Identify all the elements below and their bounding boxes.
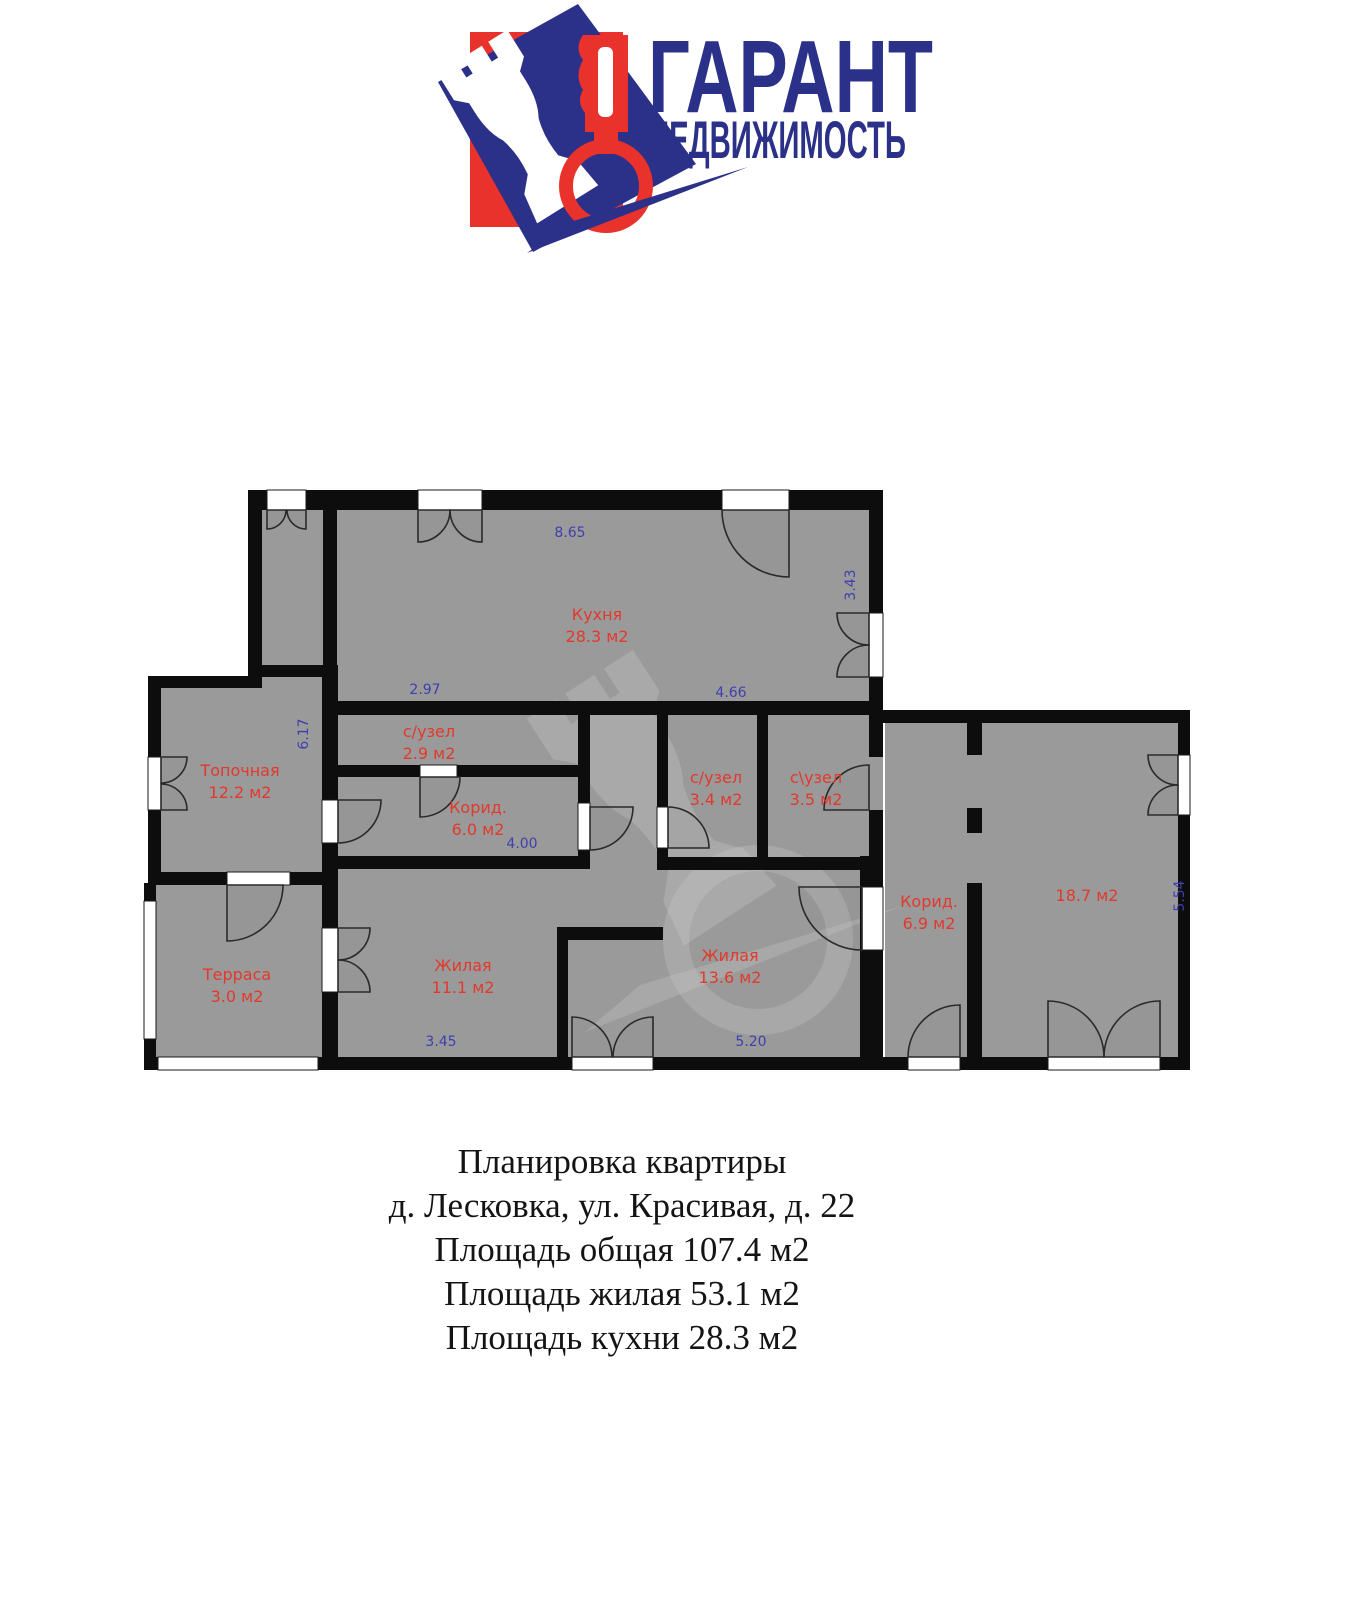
room-area-corridor2: 6.9 м2 — [903, 914, 956, 933]
window — [144, 901, 156, 1039]
window — [158, 1057, 318, 1070]
window — [267, 490, 306, 510]
room-area-boiler: 12.2 м2 — [209, 783, 272, 802]
room-label-corridor2: Корид. — [900, 892, 958, 911]
room-label-boiler: Топочная — [199, 761, 279, 780]
room-area-wc2: 3.4 м2 — [690, 790, 743, 809]
door-gap — [322, 928, 338, 992]
footer-line-living: Площадь жилая 53.1 м2 — [292, 1272, 952, 1316]
room-label-wc2: с/узел — [690, 768, 742, 787]
room-area-terrace: 3.0 м2 — [211, 987, 264, 1006]
window — [722, 490, 789, 510]
dim-2-97: 2.97 — [409, 682, 440, 698]
floor-plan: Кухня 28.3 м2 Топочная 12.2 м2 с/узел 2.… — [140, 480, 1196, 1080]
room-area-wc1: 2.9 м2 — [403, 744, 456, 763]
door-gap — [227, 872, 290, 885]
door-gap — [322, 800, 338, 843]
dim-5-20: 5.20 — [735, 1034, 766, 1050]
room-area-wc3: 3.5 м2 — [790, 790, 843, 809]
footer-line-title: Планировка квартиры — [292, 1140, 952, 1184]
room-area-bigroom: 18.7 м2 — [1056, 886, 1119, 905]
dim-3-43: 3.43 — [843, 569, 859, 600]
brand-subtitle: НЕДВИЖИМОСТЬ — [648, 111, 906, 170]
dim-8-65: 8.65 — [554, 525, 585, 541]
dim-5-54: 5.54 — [1172, 880, 1188, 911]
footer-line-kitchen: Площадь кухни 28.3 м2 — [292, 1316, 952, 1360]
plan-description: Планировка квартиры д. Лесковка, ул. Кра… — [292, 1140, 952, 1360]
dim-6-17: 6.17 — [296, 718, 312, 749]
room-label-wc1: с/узел — [403, 722, 455, 741]
window — [418, 490, 482, 510]
window — [1178, 755, 1190, 815]
door-gap — [908, 1057, 960, 1070]
footer-line-address: д. Лесковка, ул. Красивая, д. 22 — [292, 1184, 952, 1228]
room-label-living2: Жилая — [701, 946, 758, 965]
window — [869, 613, 883, 677]
window — [572, 1057, 653, 1070]
dim-3-45: 3.45 — [425, 1034, 456, 1050]
room-area-kitchen: 28.3 м2 — [566, 627, 629, 646]
door-gap — [657, 807, 668, 848]
window — [1048, 1057, 1160, 1070]
room-area-living1: 11.1 м2 — [432, 978, 495, 997]
dim-4-66: 4.66 — [715, 685, 746, 701]
window — [148, 757, 161, 810]
footer-line-total: Площадь общая 107.4 м2 — [292, 1228, 952, 1272]
brand-logo: ГАРАНТ НЕДВИЖИМОСТЬ — [430, 0, 950, 270]
room-area-corridor1: 6.0 м2 — [452, 820, 505, 839]
room-label-corridor1: Корид. — [449, 798, 507, 817]
door-gap — [420, 765, 457, 777]
room-label-living1: Жилая — [434, 956, 491, 975]
door-gap — [578, 803, 590, 850]
room-label-kitchen: Кухня — [572, 605, 622, 624]
opening — [869, 757, 883, 810]
door-gap — [862, 887, 883, 950]
dim-4-00: 4.00 — [506, 836, 537, 852]
room-label-wc3: с\узел — [790, 768, 842, 787]
room-area-living2: 13.6 м2 — [699, 968, 762, 987]
room-label-terrace: Терраса — [202, 965, 271, 984]
